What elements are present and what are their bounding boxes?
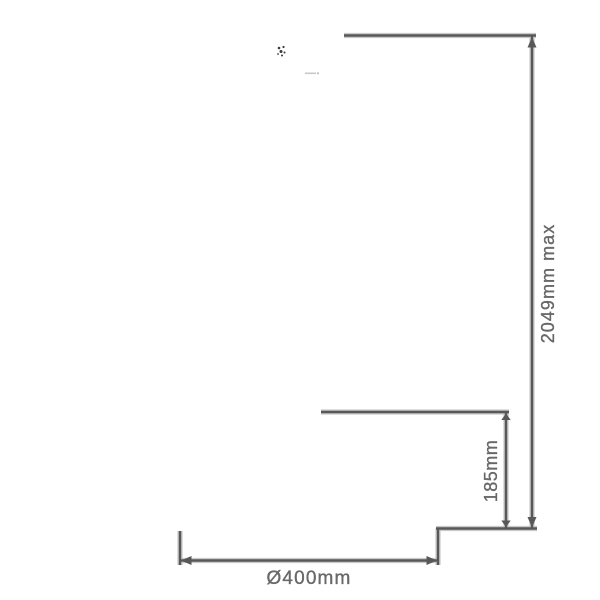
svg-text:2049mm max: 2049mm max — [538, 224, 558, 344]
svg-text:185mm: 185mm — [481, 440, 501, 503]
svg-text:Ø400mm: Ø400mm — [266, 568, 351, 589]
